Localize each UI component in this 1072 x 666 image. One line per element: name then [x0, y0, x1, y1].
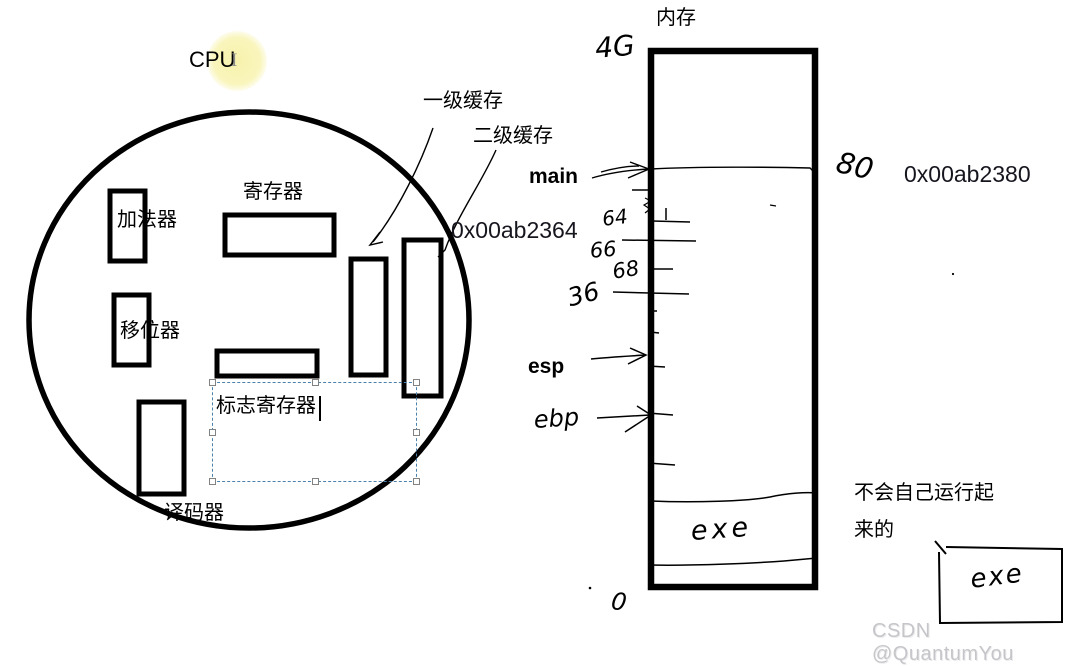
- selection-handle-top-right[interactable]: [413, 379, 420, 386]
- main-line: [651, 167, 814, 172]
- cpu-title: CPU: [189, 47, 235, 72]
- cache-address: 0x00ab2364: [451, 217, 578, 243]
- exe-box-label: exe: [969, 560, 1025, 592]
- stray-dot-2: [952, 273, 954, 275]
- main-pointer-label: main: [529, 165, 578, 189]
- offset-mark-66: 66: [589, 239, 617, 262]
- memory-tick-marks: [613, 190, 696, 465]
- l2-cache-rect: [404, 240, 441, 396]
- esp-pointer-label: esp: [528, 355, 564, 379]
- main-offset-mark: 80: [833, 148, 875, 185]
- register-rect: [225, 215, 334, 255]
- selection-handle-bottom-left[interactable]: [209, 478, 216, 485]
- offset-mark-64: 64: [601, 206, 629, 229]
- memory-exe-mark: exe: [690, 514, 753, 545]
- selection-handle-top-left[interactable]: [209, 379, 216, 386]
- selection-handle-top-mid[interactable]: [312, 379, 319, 386]
- paint-canvas: CPU I 加法器 寄存器 移位器 标志寄存器 译码器 一级缓存 二级缓存 0x…: [0, 0, 1072, 651]
- l1-cache-label: 一级缓存: [423, 90, 503, 113]
- main-address: 0x00ab2380: [904, 161, 1031, 187]
- text-cursor-icon: I: [231, 50, 237, 72]
- decoder-label: 译码器: [164, 502, 224, 525]
- l1-cache-rect: [351, 259, 386, 375]
- selection-marquee[interactable]: [212, 382, 417, 482]
- selection-handle-mid-right[interactable]: [413, 429, 420, 436]
- note-line-2: 来的: [854, 519, 894, 542]
- watermark: CSDN @QuantumYou: [872, 620, 1072, 666]
- register-label: 寄存器: [243, 181, 303, 204]
- stray-dot-1: [589, 587, 592, 590]
- l1-cache-arrow: [373, 128, 433, 242]
- offset-mark-36: 36: [565, 278, 602, 310]
- memory-capacity-mark: 4G: [594, 32, 636, 63]
- ebp-pointer-mark: ebp: [533, 405, 580, 432]
- note-line-1: 不会自己运行起: [854, 482, 994, 505]
- l2-cache-label: 二级缓存: [473, 125, 553, 148]
- offset-mark-68: 68: [611, 258, 641, 283]
- main-arrow: [592, 162, 649, 178]
- stray-dash: [770, 205, 776, 206]
- memory-title: 内存: [656, 7, 696, 30]
- exe-region-bottom-line: [648, 558, 817, 565]
- esp-arrow: [591, 348, 646, 364]
- decoder-rect: [139, 402, 184, 494]
- flag-register-rect: [217, 351, 317, 376]
- memory-rect: [651, 51, 815, 587]
- adder-label: 加法器: [117, 209, 177, 232]
- selection-handle-bottom-mid[interactable]: [312, 478, 319, 485]
- exe-region-top-line: [651, 493, 817, 502]
- selection-handle-bottom-right[interactable]: [413, 478, 420, 485]
- selection-handle-mid-left[interactable]: [209, 429, 216, 436]
- shifter-label: 移位器: [120, 320, 180, 343]
- ebp-arrow: [597, 406, 651, 432]
